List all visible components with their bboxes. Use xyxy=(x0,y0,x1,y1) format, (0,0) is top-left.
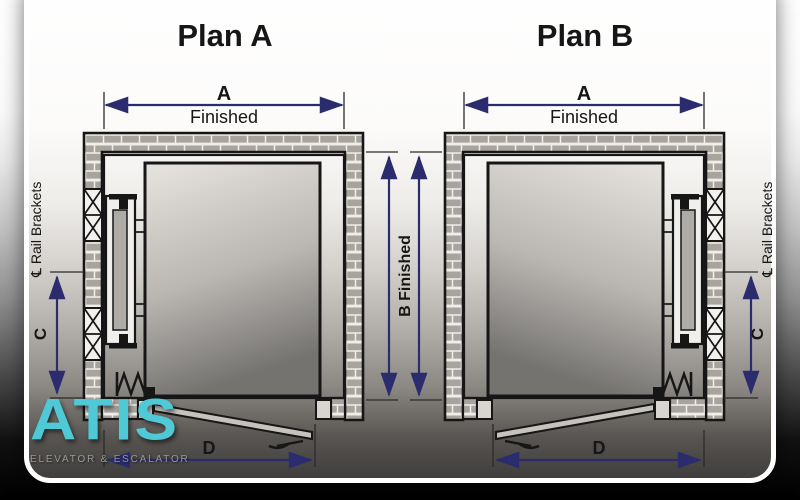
plan-b-dim-a-letter: A xyxy=(577,83,591,105)
logo-wordmark: ATIS xyxy=(30,390,190,449)
plan-b-dim-d-letter: D xyxy=(593,438,606,458)
plan-a-rail-brackets-label: ℄ Rail Brackets xyxy=(28,182,44,278)
plan-a-dim-a-sub: Finished xyxy=(190,107,258,127)
plan-b-title: Plan B xyxy=(537,18,633,53)
plan-a-dim-d-letter: D xyxy=(203,438,216,458)
plan-b-dim-a-sub: Finished xyxy=(550,107,618,127)
plan-a-dim-c-letter: C xyxy=(31,328,50,340)
plan-b-drawing xyxy=(410,92,758,467)
plan-a-dim-a-letter: A xyxy=(217,83,231,105)
page-background: Plan A Plan B A Finished A Finished B Fi… xyxy=(0,0,800,500)
logo-tagline: ELEVATOR & ESCALATOR xyxy=(30,455,190,465)
plan-a-title: Plan A xyxy=(177,18,272,53)
plan-b-rail-brackets-label: ℄ Rail Brackets xyxy=(759,182,775,278)
atis-logo: ATIS ELEVATOR & ESCALATOR xyxy=(30,390,190,465)
plan-b-dim-c-letter: C xyxy=(748,328,767,340)
dim-b-label: B Finished xyxy=(397,235,414,317)
